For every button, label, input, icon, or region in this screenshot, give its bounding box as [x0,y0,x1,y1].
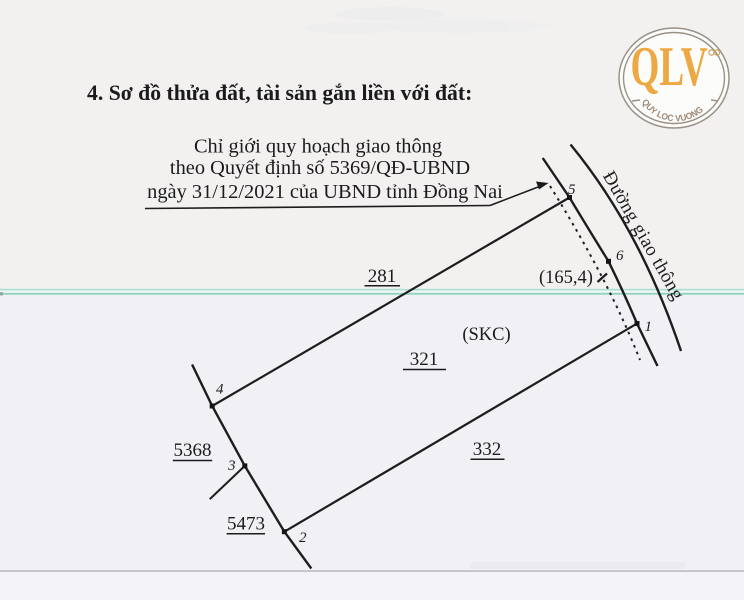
svg-text:2: 2 [299,530,307,546]
svg-text:332: 332 [473,439,502,460]
svg-text:ngày 31/12/2021 của UBND tỉnh: ngày 31/12/2021 của UBND tỉnh Đồng Nai [147,181,503,203]
svg-text:4: 4 [216,382,224,398]
svg-text:4. Sơ đồ thửa đất, tài sản gắn: 4. Sơ đồ thửa đất, tài sản gắn liền với … [87,81,472,105]
svg-text:1: 1 [645,319,653,335]
svg-text:QLV: QLV [631,36,708,98]
svg-text:theo Quyết định số 5369/QĐ-UBN: theo Quyết định số 5369/QĐ-UBND [170,157,470,179]
svg-text:281: 281 [368,266,397,287]
svg-text:(SKC): (SKC) [462,325,510,345]
svg-text:5: 5 [568,182,576,198]
svg-text:3: 3 [227,458,236,474]
svg-text:321: 321 [410,349,439,370]
svg-text:5368: 5368 [174,440,212,461]
svg-text:5473: 5473 [227,514,265,535]
svg-text:6: 6 [616,248,624,264]
svg-text:Chỉ giới quy hoạch giao thông: Chỉ giới quy hoạch giao thông [194,136,442,158]
svg-text:(165,4): (165,4) [539,268,593,288]
